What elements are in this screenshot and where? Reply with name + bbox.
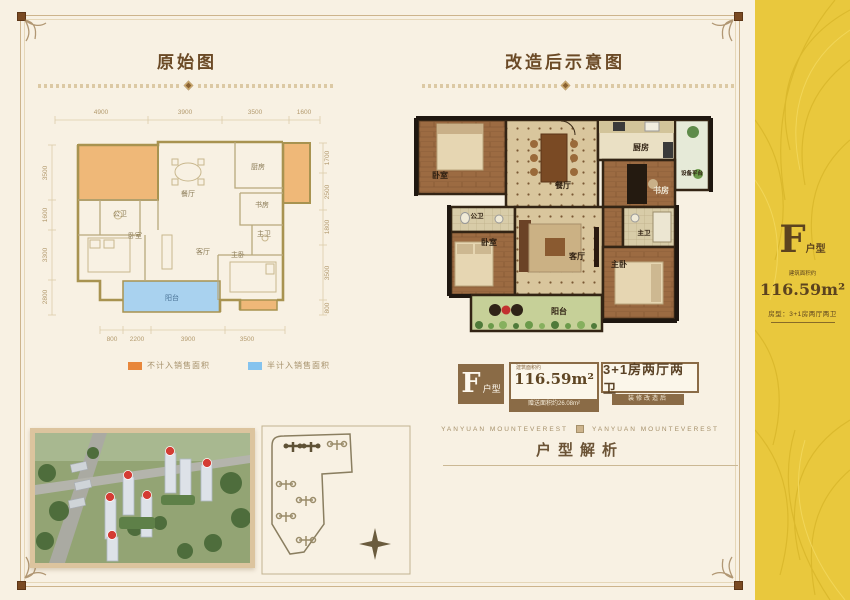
room-label-public-bath: 公卫 bbox=[471, 212, 485, 220]
brand-square-icon bbox=[576, 425, 584, 433]
type-suffix: 户型 bbox=[483, 382, 501, 395]
brand-text-right: YANYUAN MOUNTEVEREST bbox=[592, 426, 719, 433]
sidebar-divider bbox=[771, 322, 835, 323]
dim-bottom-1: 800 bbox=[107, 336, 118, 343]
renovated-plan-title: 改造后示意图 bbox=[460, 48, 670, 73]
type-letter: F bbox=[461, 364, 480, 404]
dim-bottom-3: 3900 bbox=[181, 336, 196, 343]
sidebar-area-value: 116.59m² bbox=[760, 280, 845, 299]
area-value: 116.59m² bbox=[511, 371, 597, 388]
dim-bottom-2: 2200 bbox=[130, 336, 145, 343]
brand-text-left: YANYUAN MOUNTEVEREST bbox=[441, 426, 568, 433]
dim-right-2: 2500 bbox=[324, 184, 330, 199]
dim-right-3: 1800 bbox=[324, 219, 330, 234]
divider-right-a bbox=[422, 84, 557, 88]
compass-icon bbox=[359, 528, 391, 560]
brand-row: YANYUAN MOUNTEVEREST YANYUAN MOUNTEVERES… bbox=[430, 425, 730, 433]
legend-item-blue: 半计入销售面积 bbox=[248, 360, 330, 371]
hallway bbox=[603, 207, 623, 247]
bay-area-right bbox=[283, 143, 310, 203]
room-label-dining: 餐厅 bbox=[181, 189, 195, 198]
aerial-photo bbox=[30, 428, 255, 568]
room-label-bedroom: 卧室 bbox=[128, 231, 142, 240]
dim-right-5: 800 bbox=[324, 302, 330, 313]
legend-label: 半计入销售面积 bbox=[267, 360, 330, 371]
dim-right-4: 3500 bbox=[324, 265, 330, 280]
area-legend: 不计入销售面积 半计入销售面积 bbox=[128, 360, 330, 371]
sidebar-band: F户型 建筑面积约 116.59m² 房型：3+1房两厅两卫 bbox=[755, 0, 850, 600]
layout-sub-badge: 装修改造后 bbox=[612, 394, 684, 405]
divider-left-a bbox=[38, 84, 180, 88]
divider-left-b bbox=[198, 84, 335, 88]
divider-diamond-icon bbox=[561, 81, 571, 91]
room-label-kitchen: 厨房 bbox=[633, 142, 649, 152]
corner-ornament-bottom-right bbox=[734, 581, 743, 590]
dim-left-3: 3300 bbox=[42, 247, 49, 262]
dim-top-3: 3500 bbox=[248, 109, 263, 116]
room-label-living: 客厅 bbox=[196, 247, 210, 256]
legend-swatch-blue bbox=[248, 362, 262, 370]
dim-left-2: 1600 bbox=[42, 207, 49, 222]
sidebar-type-letter: F bbox=[779, 217, 805, 261]
sidebar-type-suffix: 户型 bbox=[806, 244, 826, 255]
legend-swatch-orange bbox=[128, 362, 142, 370]
room-label-dining: 餐厅 bbox=[554, 180, 571, 190]
room-label-master-bath: 主卫 bbox=[638, 228, 652, 237]
room-label-balcony: 阳台 bbox=[551, 306, 567, 316]
layout-badge: 3+1房两厅两卫 bbox=[601, 362, 699, 393]
room-label-bedroom-top: 卧室 bbox=[432, 170, 448, 180]
dim-bottom-4: 3500 bbox=[240, 336, 255, 343]
room-label-bedroom-low: 卧室 bbox=[481, 237, 497, 247]
bay-area-bottom bbox=[240, 300, 277, 310]
corner-ornament-top-right bbox=[734, 12, 743, 21]
sidebar-type-block: F户型 建筑面积约 116.59m² 房型：3+1房两厅两卫 bbox=[755, 220, 850, 323]
room-label-study: 书房 bbox=[255, 200, 269, 209]
room-label-kitchen: 厨房 bbox=[251, 162, 265, 171]
area-bonus: 赠送面积约26.08m² bbox=[511, 399, 597, 410]
renovated-floor-plan: 卧室 餐厅 厨房 设备平台 书房 公卫 卧室 客厅 主卫 主卧 阳台 bbox=[413, 112, 713, 347]
dim-top-4: 1600 bbox=[297, 109, 312, 116]
original-plan-title: 原始图 bbox=[92, 48, 282, 73]
bay-area-topleft bbox=[78, 145, 158, 200]
sidebar-layout-detail: 房型：3+1房两厅两卫 bbox=[755, 308, 850, 318]
corner-flourish-icon bbox=[708, 553, 734, 579]
room-label-master: 主卧 bbox=[231, 250, 245, 259]
dim-top-2: 3900 bbox=[178, 109, 193, 116]
area-badge: 建筑面积约 116.59m² 赠送面积约26.08m² bbox=[509, 362, 599, 412]
divider-right-b bbox=[575, 84, 735, 88]
room-label-study: 书房 bbox=[653, 185, 669, 195]
legend-item-orange: 不计入销售面积 bbox=[128, 360, 210, 371]
room-label-master: 主卧 bbox=[611, 259, 627, 269]
room-label-public-bath: 公卫 bbox=[113, 210, 127, 218]
aerial-photo-image bbox=[35, 433, 250, 563]
room-label-balcony: 阳台 bbox=[165, 293, 179, 302]
analysis-title: 户型解析 bbox=[430, 439, 730, 460]
dim-right-1: 1700 bbox=[324, 150, 330, 165]
site-buildings bbox=[277, 440, 347, 546]
corner-flourish-icon bbox=[708, 19, 734, 45]
dim-top-1: 4900 bbox=[94, 109, 109, 116]
dim-left-4: 2800 bbox=[42, 289, 49, 304]
analysis-rule bbox=[443, 465, 738, 466]
corner-ornament-bottom-left bbox=[17, 581, 26, 590]
brochure-page: 原始图 改造后示意图 4900 3900 3500 1600 800 bbox=[0, 0, 850, 600]
corner-flourish-icon bbox=[24, 19, 50, 45]
type-badge: F 户型 bbox=[458, 364, 504, 404]
divider-diamond-icon bbox=[184, 81, 194, 91]
sidebar-area-prefix: 建筑面积约 bbox=[789, 271, 817, 277]
room-label-living: 客厅 bbox=[568, 251, 585, 261]
legend-label: 不计入销售面积 bbox=[147, 360, 210, 371]
room-label-master-bath: 主卫 bbox=[257, 229, 271, 238]
room-label-equipment: 设备平台 bbox=[681, 169, 704, 177]
original-floor-plan: 4900 3900 3500 1600 800 2200 3900 3500 3… bbox=[40, 100, 330, 350]
dim-left-1: 3500 bbox=[42, 165, 49, 180]
site-plan bbox=[260, 424, 412, 576]
